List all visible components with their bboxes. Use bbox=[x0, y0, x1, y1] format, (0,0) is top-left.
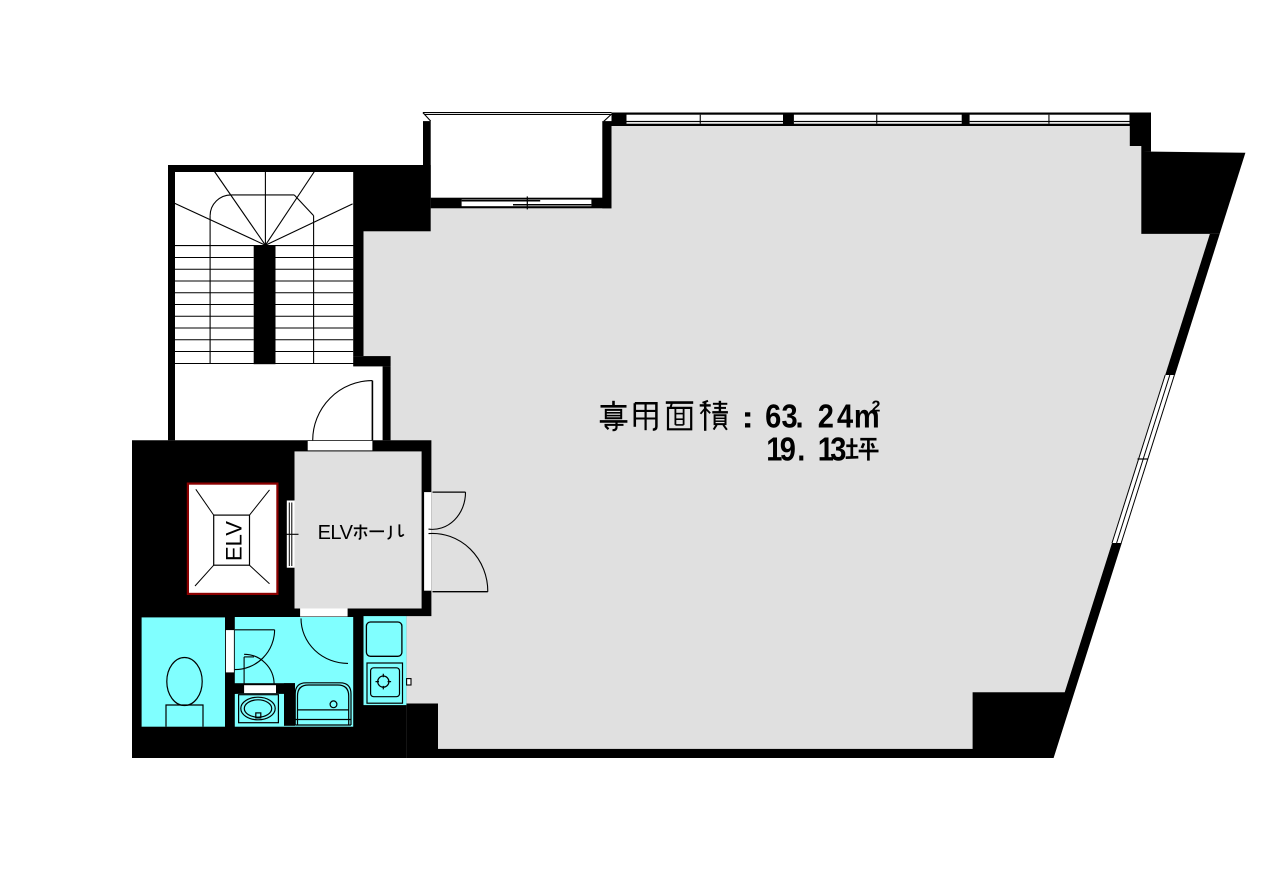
svg-text:6: 6 bbox=[765, 398, 781, 435]
svg-text:3: 3 bbox=[830, 431, 846, 468]
svg-text:.: . bbox=[797, 431, 805, 468]
svg-text:2: 2 bbox=[818, 398, 834, 435]
svg-text:ELV: ELV bbox=[318, 522, 354, 544]
svg-text:ELV: ELV bbox=[222, 521, 247, 561]
svg-text:9: 9 bbox=[780, 431, 796, 468]
svg-text:2: 2 bbox=[872, 399, 881, 416]
svg-text:4: 4 bbox=[837, 398, 854, 435]
svg-text:.: . bbox=[796, 398, 804, 435]
